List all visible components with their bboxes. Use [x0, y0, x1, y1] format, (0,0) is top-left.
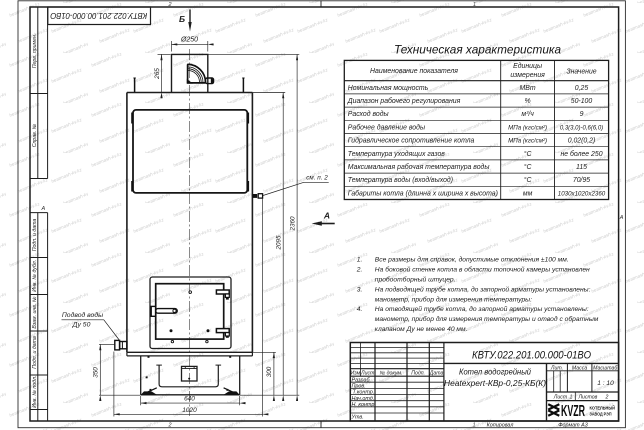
- svg-text:№ докум.: № докум.: [380, 370, 403, 376]
- svg-text:Разраб.: Разраб.: [352, 377, 372, 383]
- svg-text:Номинальная мощность: Номинальная мощность: [348, 85, 429, 92]
- svg-text:А: А: [40, 206, 45, 212]
- svg-text:не более 250: не более 250: [560, 150, 602, 158]
- svg-text:Т.контр.: Т.контр.: [353, 390, 375, 396]
- svg-text:Инв. № подл.: Инв. № подл.: [32, 376, 38, 408]
- svg-text:0,02(0,2): 0,02(0,2): [568, 138, 596, 145]
- svg-text:Котел водогрейный: Котел водогрейный: [459, 367, 531, 377]
- svg-text:Рабочее давление воды: Рабочее давление воды: [348, 123, 425, 131]
- svg-text:Справ. №: Справ. №: [32, 123, 38, 147]
- svg-text:Температура воды (вход/выход): Температура воды (вход/выход): [348, 176, 453, 184]
- svg-text:На отводящей трубе котла, до з: На отводящей трубе котла, до запорной ар…: [375, 305, 589, 313]
- svg-text:измерения: измерения: [510, 72, 545, 79]
- svg-text:МПа (кгс/см²): МПа (кгс/см²): [508, 124, 547, 131]
- svg-text:На подводящей трубе котла, до: На подводящей трубе котла, до запорной а…: [375, 285, 591, 293]
- svg-text:2: 2: [167, 422, 171, 428]
- svg-text:Перв. примен.: Перв. примен.: [32, 34, 38, 68]
- svg-text:ЗАВОД РЭП: ЗАВОД РЭП: [590, 411, 612, 416]
- svg-text:Heatexpert-КВр-0,25-КБ(К): Heatexpert-КВр-0,25-КБ(К): [444, 378, 546, 388]
- svg-text:см. п. 2: см. п. 2: [306, 175, 328, 182]
- svg-text:Подп.: Подп.: [411, 370, 425, 376]
- svg-text:Подп. и дата: Подп. и дата: [32, 336, 38, 369]
- svg-text:0,25: 0,25: [575, 85, 589, 92]
- svg-text:1030х1020х2360: 1030х1020х2360: [558, 190, 606, 197]
- svg-text:А: А: [619, 215, 624, 221]
- svg-text:1.: 1.: [357, 257, 363, 264]
- svg-text:Дата: Дата: [429, 370, 444, 376]
- svg-text:манометр, прибор для измерения: манометр, прибор для измерения температу…: [375, 295, 532, 303]
- svg-text:9: 9: [580, 111, 584, 118]
- svg-text:Габариты котла (длинна х ширин: Габариты котла (длинна х ширина х высота…: [348, 189, 498, 197]
- svg-text:2095: 2095: [276, 235, 283, 251]
- svg-text:2.: 2.: [356, 267, 363, 274]
- svg-text:KVZR: KVZR: [561, 403, 585, 420]
- svg-text:КВТУ.022.201.00.000-01ВО: КВТУ.022.201.00.000-01ВО: [50, 11, 148, 20]
- svg-text:Лист: Лист: [553, 395, 568, 401]
- svg-text:1 : 10: 1 : 10: [597, 380, 614, 387]
- svg-text:2: 2: [167, 2, 171, 8]
- svg-text:2: 2: [605, 395, 609, 401]
- svg-text:4.: 4.: [357, 306, 363, 313]
- svg-text:Взам. инв. №: Взам. инв. №: [32, 296, 38, 328]
- svg-text:КОТЕЛЬНЫЙ: КОТЕЛЬНЫЙ: [590, 403, 616, 410]
- svg-text:Ø250: Ø250: [180, 37, 198, 44]
- svg-text:Расход воды: Расход воды: [348, 110, 389, 118]
- svg-text:Копировал: Копировал: [487, 423, 514, 429]
- svg-text:манометр, прибор для измерения: манометр, прибор для измерения температу…: [375, 315, 599, 323]
- svg-text:клапаном Ду не менее 40 мм.: клапаном Ду не менее 40 мм.: [375, 326, 468, 333]
- svg-text:265: 265: [154, 68, 161, 80]
- svg-text:Наименование показателя: Наименование показателя: [370, 68, 458, 75]
- svg-text:Максимальная рабочая температу: Максимальная рабочая температура воды: [348, 163, 490, 171]
- svg-text:%: %: [525, 98, 531, 105]
- svg-text:А: А: [323, 211, 330, 221]
- svg-text:1: 1: [570, 395, 573, 401]
- svg-text:МПа (кгс/см²): МПа (кгс/см²): [508, 138, 547, 145]
- svg-text:0,3(3,0)-0,6(6,0): 0,3(3,0)-0,6(6,0): [560, 125, 603, 131]
- svg-text:Листов: Листов: [578, 395, 598, 401]
- svg-text:На боковой стенке котла в обла: На боковой стенке котла в области топочн…: [375, 266, 590, 274]
- svg-text:1: 1: [473, 2, 476, 8]
- svg-text:1020: 1020: [182, 407, 197, 414]
- svg-text:КВТУ.022.201.00.000-01ВО: КВТУ.022.201.00.000-01ВО: [472, 350, 592, 362]
- svg-text:Пров.: Пров.: [352, 384, 366, 390]
- svg-text:Лист: Лист: [360, 370, 375, 376]
- svg-text:Масса: Масса: [572, 365, 587, 371]
- svg-text:Техническая характеристика: Техническая характеристика: [394, 42, 561, 56]
- svg-text:Ду 50: Ду 50: [72, 321, 91, 328]
- svg-text:пробоотборный штуцер.: пробоотборный штуцер.: [375, 276, 456, 284]
- svg-text:Диапазон рабочего регулировани: Диапазон рабочего регулирования: [347, 97, 461, 105]
- svg-text:°С: °С: [524, 150, 533, 158]
- svg-text:115: 115: [576, 164, 587, 171]
- svg-text:640: 640: [184, 396, 195, 403]
- svg-text:Лит.: Лит.: [550, 365, 563, 371]
- svg-text:Значение: Значение: [566, 69, 596, 76]
- svg-text:70/95: 70/95: [573, 177, 590, 184]
- svg-text:Подп. и дата: Подп. и дата: [32, 219, 38, 252]
- svg-text:Гидравлическое сопротивление к: Гидравлическое сопротивление котла: [348, 137, 475, 145]
- svg-text:50-100: 50-100: [571, 98, 593, 105]
- svg-text:Нач.отд.: Нач.отд.: [352, 396, 375, 402]
- svg-text:350: 350: [92, 367, 99, 378]
- svg-text:Инв. № дубл.: Инв. № дубл.: [32, 260, 38, 292]
- svg-text:Б: Б: [179, 14, 185, 24]
- svg-text:Масштаб: Масштаб: [593, 365, 618, 371]
- svg-text:Изм: Изм: [351, 370, 361, 376]
- svg-text:Единицы: Единицы: [513, 62, 542, 70]
- svg-text:Подвод воды: Подвод воды: [62, 311, 103, 319]
- svg-text:3.: 3.: [357, 286, 363, 293]
- svg-text:Все размеры для справок, допус: Все размеры для справок, допустимые откл…: [375, 256, 569, 264]
- svg-text:2360: 2360: [289, 216, 296, 232]
- svg-text:1: 1: [472, 422, 475, 428]
- svg-text:МВт: МВт: [520, 85, 536, 92]
- svg-text:Температура уходящих газов: Температура уходящих газов: [348, 150, 446, 158]
- svg-text:300: 300: [266, 366, 273, 377]
- svg-text:м³/ч: м³/ч: [521, 111, 534, 118]
- svg-text:Формат А3: Формат А3: [558, 423, 588, 429]
- svg-text:мм: мм: [523, 190, 533, 197]
- svg-text:Н. контр.: Н. контр.: [352, 402, 376, 408]
- svg-text:°С: °С: [524, 176, 533, 184]
- svg-text:°С: °С: [524, 163, 533, 171]
- svg-text:Утв.: Утв.: [351, 414, 364, 420]
